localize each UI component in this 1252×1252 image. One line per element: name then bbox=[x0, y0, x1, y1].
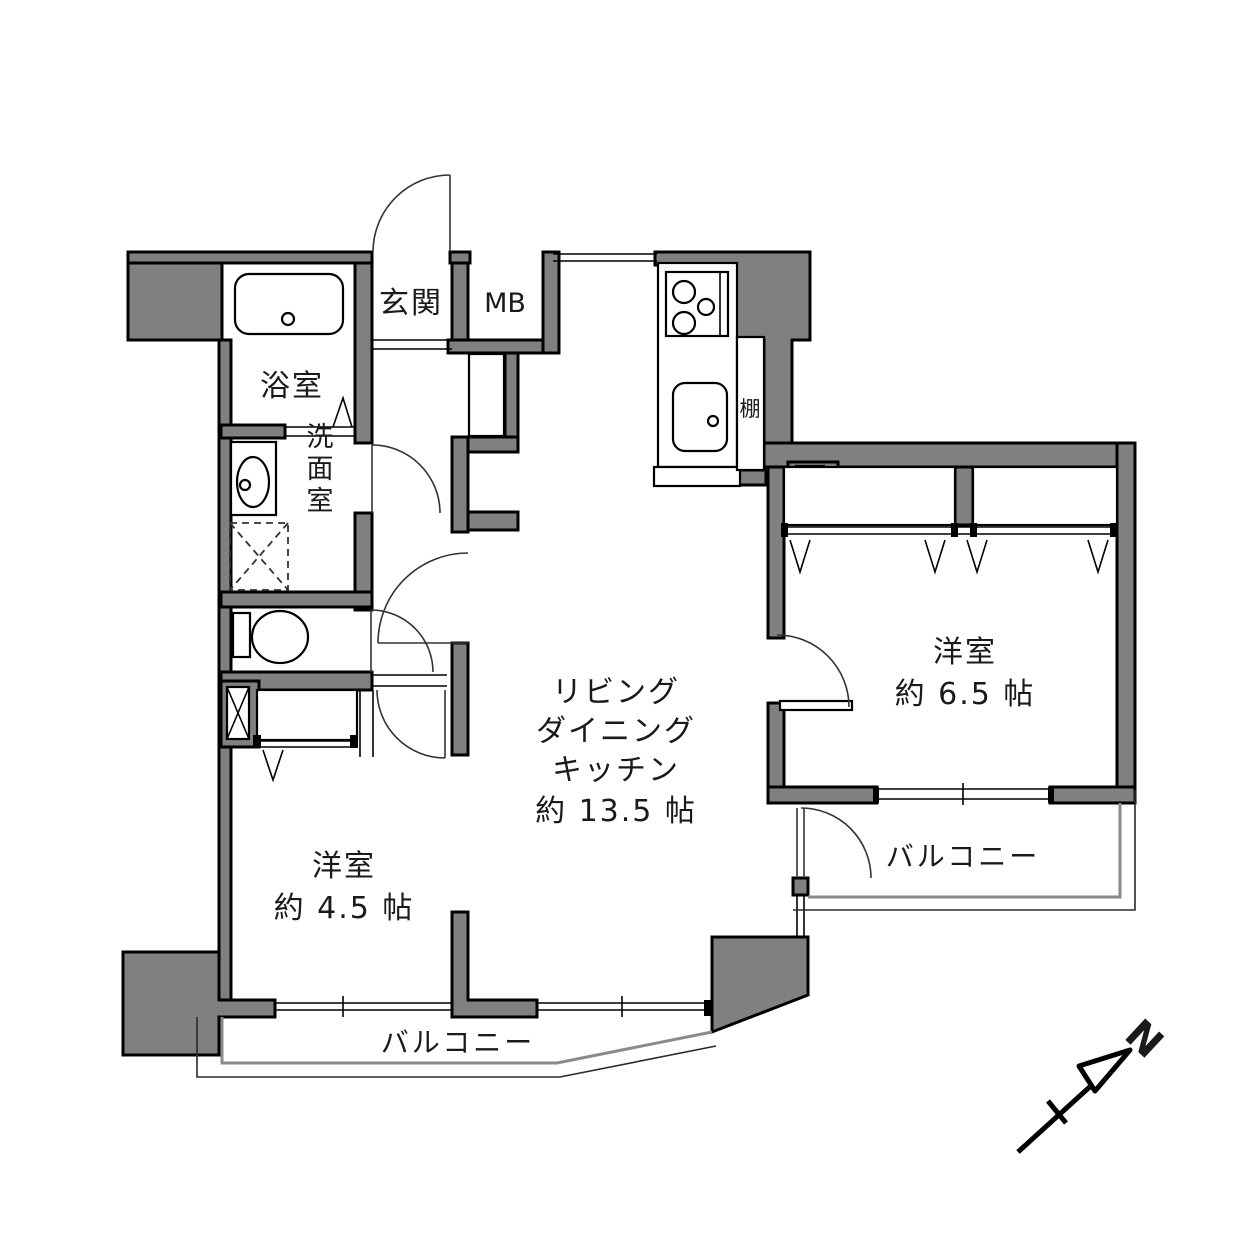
toilet-bowl-icon bbox=[252, 611, 308, 663]
kitchen-sink-icon bbox=[673, 383, 727, 451]
label-balcony-east: バルコニー bbox=[886, 840, 1040, 873]
bathtub-drain-icon bbox=[282, 313, 294, 325]
pipe-space-west-icon bbox=[227, 687, 249, 739]
label-bedroom-east: 洋室 bbox=[933, 635, 997, 670]
label-ldk-line3: キッチン bbox=[552, 753, 680, 788]
label-ldk-line4: 約 13.5 帖 bbox=[535, 794, 697, 829]
label-bedroom-west: 洋室 bbox=[312, 849, 376, 884]
label-balcony-south: バルコニー bbox=[381, 1026, 535, 1059]
wall-zigzag-horizontal bbox=[468, 437, 518, 452]
wall-zigzag-vertical bbox=[505, 353, 518, 437]
wall-top-west bbox=[128, 252, 372, 263]
wall-closet-divider bbox=[955, 467, 973, 525]
floorplan-drawing: N 浴室 玄関 MB 洗面室 棚 リビング ダイニング キッチン 約 13.5 … bbox=[0, 0, 1252, 1252]
burner-icon bbox=[698, 299, 714, 315]
shoe-cabinet bbox=[469, 354, 504, 436]
label-shelf: 棚 bbox=[740, 397, 761, 421]
burner-icon bbox=[673, 281, 695, 303]
wall-top-entrance-cap bbox=[450, 252, 470, 263]
wall-hall-right bbox=[452, 437, 468, 532]
counter-end-cap bbox=[654, 467, 740, 486]
toilet-tank-icon bbox=[233, 613, 250, 657]
wall-stub-ldk bbox=[468, 512, 518, 530]
wall-bedroom-east-bottom-east bbox=[1050, 787, 1135, 803]
sink-drain-icon bbox=[708, 416, 718, 426]
wall-bedroom-east-bottom-west bbox=[768, 787, 877, 803]
closet-east-1 bbox=[784, 467, 955, 525]
wall-mb-right bbox=[543, 252, 559, 353]
wall-block-topleft bbox=[128, 263, 222, 340]
wall-counter-stub bbox=[737, 470, 766, 485]
wall-washroom-bottom bbox=[221, 592, 372, 607]
floorplan-page: N 浴室 玄関 MB 洗面室 棚 リビング ダイニング キッチン 約 13.5 … bbox=[0, 0, 1252, 1252]
label-washroom: 洗面室 bbox=[302, 422, 333, 518]
wall-bath-hall bbox=[355, 263, 372, 443]
label-ldk-line1: リビング bbox=[552, 675, 680, 710]
wall-hall-right-lower bbox=[452, 643, 468, 755]
label-bedroom-west-size: 約 4.5 帖 bbox=[274, 891, 415, 926]
burner-icon bbox=[673, 312, 695, 334]
label-meter-box: MB bbox=[484, 288, 526, 319]
label-bedroom-east-size: 約 6.5 帖 bbox=[895, 677, 1036, 712]
closet-east-2 bbox=[973, 467, 1117, 525]
label-bathroom: 浴室 bbox=[260, 369, 324, 404]
label-ldk-line2: ダイニング bbox=[536, 714, 696, 749]
wall-bedroom-east-right bbox=[1117, 443, 1135, 790]
wall-bedroom-east-left-upper bbox=[768, 467, 784, 638]
label-entrance: 玄関 bbox=[379, 286, 443, 321]
washbasin-faucet-icon bbox=[240, 480, 250, 490]
closet-west bbox=[257, 690, 357, 740]
wall-balcony-door-post bbox=[793, 878, 808, 895]
wall-bath-bottom bbox=[221, 425, 285, 438]
